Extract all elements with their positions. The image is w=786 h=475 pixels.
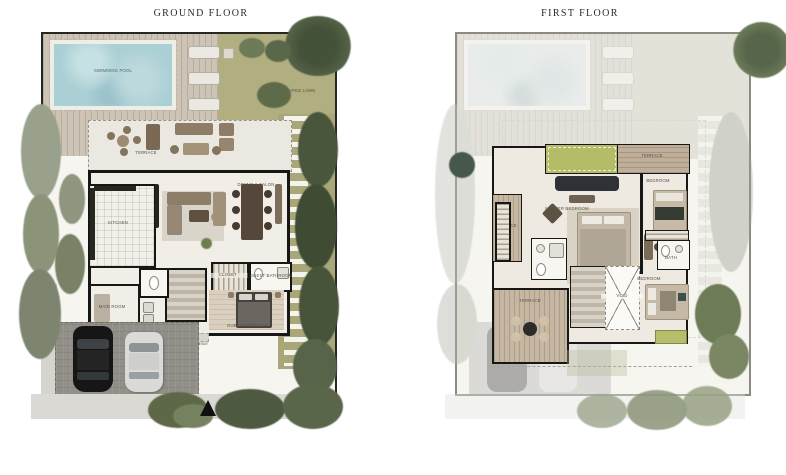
pillow [648, 303, 656, 315]
foliage [21, 104, 61, 199]
terrace-bottom-label: TERRACE [508, 299, 551, 304]
toilet [536, 263, 546, 276]
outdoor-chair [212, 146, 221, 155]
palm-tree [733, 22, 786, 78]
tree [257, 82, 291, 108]
car-roof [129, 353, 159, 370]
foliage [59, 174, 85, 224]
outdoor-sofa [175, 123, 213, 135]
bedroom-right-label: BEDROOM [640, 179, 676, 184]
bath-label: BATH [655, 256, 687, 261]
powder-room [139, 268, 169, 298]
side-table [223, 48, 234, 59]
first-floor-plan: TERRACE TERRACE MASTER BEDROOM BEDROOM B… [455, 32, 751, 396]
bush [682, 386, 732, 426]
outdoor-chair [120, 148, 128, 156]
outdoor-armchair [219, 123, 234, 136]
guest-bed [236, 292, 272, 328]
car-rear-window [129, 372, 159, 379]
foliage [23, 194, 59, 274]
kitchen-counter [94, 186, 136, 191]
guest-bathroom: GUEST BATHROOM [249, 262, 292, 292]
dining-chair [232, 206, 240, 214]
swimming-pool: SWIMMING POOL [50, 40, 176, 110]
patio-chair [539, 316, 549, 326]
sofa [167, 205, 182, 235]
guest-bedroom: GUEST BEDROOM [209, 290, 284, 330]
floor-plan-page: { "ground": { "title": "GROUND FLOOR", "… [0, 0, 786, 475]
bush [283, 384, 343, 429]
wardrobe [495, 202, 511, 262]
outdoor-coffee-table [183, 143, 209, 155]
car-windshield [77, 339, 109, 349]
bedroom-bottom-label: BEDROOM [627, 277, 670, 282]
sofa [167, 192, 211, 205]
pool-faded [464, 40, 590, 110]
master-sofa [555, 176, 619, 191]
blanket [238, 302, 270, 326]
dining-table [241, 184, 263, 240]
entrance-arrow-icon [200, 400, 216, 416]
blanket [580, 229, 626, 271]
washer [143, 302, 154, 313]
tree [709, 334, 749, 379]
shower [549, 243, 564, 258]
bedroom-bottom-bed [645, 284, 689, 320]
basin [536, 244, 545, 253]
dining-chair [264, 190, 272, 198]
tv-wall [155, 184, 159, 228]
patio-chair [511, 316, 521, 326]
dining-chair [264, 222, 272, 230]
foliage [19, 269, 61, 359]
void-label: VOID [601, 294, 643, 299]
kitchen-label: KITCHEN [95, 221, 141, 226]
guest-bedroom-label: GUEST BEDROOM [225, 324, 268, 329]
pillow [255, 294, 268, 300]
foliage-faded [435, 104, 475, 284]
nightstand [275, 292, 281, 298]
patio-chair [539, 332, 549, 342]
ground-floor-scene: LANDSCAPED LAWN SWIMMING POOL TERRACE KI… [43, 34, 335, 394]
outdoor-chair [170, 145, 179, 154]
void: VOID [605, 266, 640, 330]
car-rear-window [77, 372, 109, 380]
outdoor-chair [123, 126, 131, 134]
green-rug [655, 330, 687, 344]
ground-floor-title: GROUND FLOOR [121, 8, 281, 19]
terrace-bottom: TERRACE [492, 288, 569, 364]
nightstand [228, 292, 234, 298]
car-white [125, 332, 163, 392]
car-black [73, 326, 113, 392]
maid-room-label: MAID ROOM [90, 305, 133, 310]
pillow [239, 294, 252, 300]
bush [577, 394, 627, 428]
dining-chair [232, 222, 240, 230]
outdoor-armchair [219, 138, 234, 151]
pillow [604, 216, 624, 224]
foliage [55, 234, 85, 294]
blanket [660, 291, 676, 311]
bush [215, 389, 285, 429]
round-tree [449, 152, 475, 178]
staircase [165, 268, 207, 322]
basin [675, 245, 683, 253]
first-floor-scene: TERRACE TERRACE MASTER BEDROOM BEDROOM B… [457, 34, 749, 394]
sun-lounger [188, 72, 220, 85]
closet-label: CLOSET [209, 273, 248, 278]
chaise [213, 192, 226, 226]
sun-lounger [188, 98, 220, 111]
partition-wall [640, 174, 643, 274]
lounger-faded [602, 46, 634, 59]
terrace-top-label: TERRACE [630, 154, 673, 159]
outdoor-chair [107, 132, 115, 140]
palm-tree [283, 16, 353, 76]
console-table [569, 195, 595, 203]
accent-pillow [678, 293, 686, 301]
lawn-patch [567, 350, 627, 376]
tree-row [298, 112, 338, 187]
car-roof [77, 350, 109, 370]
kitchen: KITCHEN [88, 184, 156, 268]
lounger-faded [602, 98, 634, 111]
bathroom-left [531, 238, 567, 280]
trees-faded [709, 112, 753, 272]
throw-blanket [655, 207, 684, 220]
tree-row [299, 266, 339, 346]
foliage-faded [437, 284, 477, 364]
indoor-plant [201, 238, 212, 249]
bathroom-right: BATH [657, 240, 690, 270]
sun-lounger [188, 46, 220, 59]
sideboard [275, 184, 282, 224]
ground-floor-plan: LANDSCAPED LAWN SWIMMING POOL TERRACE KI… [41, 32, 337, 396]
pillow [582, 216, 602, 224]
guest-bathroom-label: GUEST BATHROOM [249, 274, 292, 279]
tree [265, 40, 291, 62]
coffee-table [189, 210, 209, 222]
dining-chair [264, 206, 272, 214]
pillow [656, 193, 683, 201]
outdoor-cabinet [146, 124, 160, 150]
outdoor-table [117, 135, 129, 147]
guest-closet: CLOSET [211, 262, 249, 292]
tree-row [295, 184, 337, 269]
terrace-top: TERRACE [617, 144, 690, 174]
car-windshield [129, 343, 159, 352]
outdoor-chair [133, 136, 141, 144]
patio-table [523, 322, 537, 336]
pillow [648, 288, 656, 300]
terrace-label: TERRACE [128, 151, 164, 156]
first-floor-title: FIRST FLOOR [500, 8, 660, 19]
lounger-faded [602, 72, 634, 85]
toilet [149, 276, 159, 290]
master-bedroom-label: MASTER BEDROOM [544, 207, 590, 212]
patio-chair [511, 332, 521, 342]
roof-garden [545, 144, 619, 174]
pool-label: SWIMMING POOL [88, 69, 138, 74]
dining-chair [232, 190, 240, 198]
tree [239, 38, 265, 58]
bush [627, 390, 687, 430]
